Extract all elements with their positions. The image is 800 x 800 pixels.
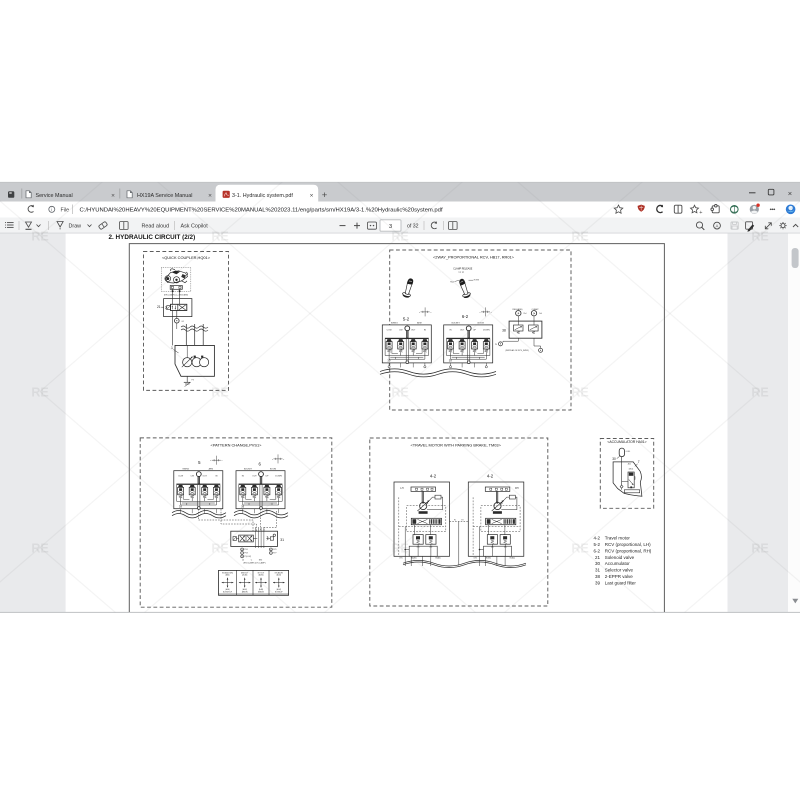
svg-text:PV5: PV5 <box>273 549 276 551</box>
svg-text:21: 21 <box>595 555 601 560</box>
svg-text:Ask Copilot: Ask Copilot <box>181 224 209 230</box>
svg-text:38: 38 <box>502 328 506 332</box>
svg-text:4-2: 4-2 <box>593 535 600 540</box>
svg-text:DR5: DR5 <box>474 558 477 560</box>
svg-text:2. HYDRAULIC CIRCUIT (2/2): 2. HYDRAULIC CIRCUIT (2/2) <box>109 234 196 241</box>
svg-text:OUT: OUT <box>460 330 465 332</box>
svg-text:Solenoid valve: Solenoid valve <box>605 555 635 560</box>
svg-text:RCV (proportional, RH): RCV (proportional, RH) <box>605 548 652 553</box>
svg-text:RE: RE <box>391 542 408 556</box>
svg-text:A02: A02 <box>628 462 631 465</box>
svg-text:a: a <box>272 459 273 461</box>
svg-text:P4: P4 <box>495 344 497 346</box>
svg-text:(MD2): (MD2) <box>629 469 634 471</box>
svg-text:a: a <box>222 460 223 462</box>
svg-text:LH: LH <box>400 487 403 490</box>
svg-text:BUCKET,UP: BUCKET,UP <box>223 592 232 594</box>
svg-text:31: 31 <box>280 538 284 542</box>
svg-text:P1(LG2): P1(LG2) <box>244 556 251 558</box>
svg-text:SWING: SWING <box>182 469 189 471</box>
svg-text:CLAMP: CLAMP <box>532 308 540 311</box>
svg-text:PV6: PV6 <box>244 549 247 551</box>
svg-text:7: 7 <box>638 460 640 464</box>
svg-text:RE: RE <box>211 542 228 556</box>
svg-text:+: + <box>322 190 328 201</box>
svg-text:BOOM,UP: BOOM,UP <box>275 592 283 594</box>
svg-text:<2WAY_PROPORTIONAL RCV, HB17,: <2WAY_PROPORTIONAL RCV, HB17, RR01> <box>433 255 515 260</box>
svg-text:DOWN: DOWN <box>483 330 490 332</box>
svg-text:5-2: 5-2 <box>403 317 410 322</box>
svg-text:P2: P2 <box>461 519 463 521</box>
svg-text:39: 39 <box>595 581 601 586</box>
svg-text:Pa4: Pa4 <box>539 313 542 315</box>
svg-text:OUT: OUT <box>203 475 208 477</box>
svg-text:G1: G1 <box>181 321 184 323</box>
svg-text:DR5: DR5 <box>399 558 402 560</box>
svg-text:38: 38 <box>595 574 601 579</box>
svg-text:×: × <box>788 189 792 198</box>
svg-text:B5(A6): B5(A6) <box>435 557 441 560</box>
svg-text:CLAMP RELEASE: CLAMP RELEASE <box>453 267 473 270</box>
svg-text:HORN: HORN <box>474 280 480 282</box>
svg-text:(INSTEAD OF RCV_SW01): (INSTEAD OF RCV_SW01) <box>506 349 530 352</box>
svg-text:×: × <box>208 192 212 199</box>
svg-text:(+) (-): (+) (-) <box>459 272 465 274</box>
svg-text:OUT: OUT <box>252 475 257 477</box>
svg-text:+: + <box>699 210 702 216</box>
svg-text:RELEASE): RELEASE) <box>513 308 523 311</box>
svg-text:21: 21 <box>157 305 161 309</box>
svg-text:RE: RE <box>211 386 228 400</box>
svg-text:P1: P1 <box>454 519 456 521</box>
svg-text:RE: RE <box>751 386 768 400</box>
svg-text:<QUICK COUPLER,HQ01>: <QUICK COUPLER,HQ01> <box>162 255 211 260</box>
svg-text:(RH,CLAMP) (LH,CLAMP): (RH,CLAMP) (LH,CLAMP) <box>243 562 266 565</box>
svg-text:Travel motor: Travel motor <box>605 535 631 540</box>
svg-text:DOWN: DOWN <box>275 475 282 477</box>
svg-text:RE: RE <box>31 386 48 400</box>
svg-text:i: i <box>51 207 52 212</box>
svg-text:a: a <box>283 459 284 461</box>
svg-text:<PATTERN CHANGE,PVS1>: <PATTERN CHANGE,PVS1> <box>211 442 263 447</box>
svg-text:4-2: 4-2 <box>487 474 494 479</box>
svg-text:4-2: 4-2 <box>430 474 437 479</box>
svg-text:PV8: PV8 <box>244 553 247 555</box>
svg-text:RE: RE <box>571 542 588 556</box>
svg-text:Service Manual: Service Manual <box>36 193 73 199</box>
svg-text:RE: RE <box>31 230 48 244</box>
svg-text:30: 30 <box>612 457 616 461</box>
svg-text:×: × <box>111 192 115 199</box>
svg-text:31: 31 <box>595 568 601 573</box>
svg-text:0.08L: 0.08L <box>626 451 631 453</box>
svg-text:A5(B6): A5(B6) <box>486 557 492 560</box>
svg-text:File: File <box>61 207 70 213</box>
svg-text:2-EPPR valve: 2-EPPR valve <box>605 574 634 579</box>
svg-text:BUCKET: BUCKET <box>452 323 461 325</box>
svg-text:A: A <box>716 224 719 229</box>
svg-text:6-2: 6-2 <box>462 314 469 319</box>
svg-text:SIG: SIG <box>259 560 263 562</box>
svg-text:a: a <box>479 312 480 314</box>
svg-text:BKT OUT: BKT OUT <box>258 572 265 574</box>
svg-text:RE: RE <box>571 230 588 244</box>
svg-text:a: a <box>430 312 431 314</box>
svg-text:BUCKET: BUCKET <box>244 469 253 471</box>
svg-text:P3: P3 <box>192 380 194 382</box>
svg-text:39: 39 <box>449 359 452 363</box>
svg-text:RE: RE <box>391 386 408 400</box>
svg-text:RCV (proportional, LH): RCV (proportional, LH) <box>605 542 651 547</box>
svg-text:(RH,CLAMP) (L+,RELEASE): (RH,CLAMP) (L+,RELEASE) <box>164 294 189 297</box>
svg-text:RE: RE <box>751 542 768 556</box>
svg-text:HX19A Service Manual: HX19A Service Manual <box>137 193 192 199</box>
svg-text:×: × <box>310 192 314 199</box>
svg-text:CW: CW <box>190 475 194 477</box>
svg-text:BOOM: BOOM <box>270 469 276 471</box>
svg-text:RE: RE <box>391 230 408 244</box>
svg-text:5-2: 5-2 <box>593 542 600 547</box>
svg-text:CCW: CCW <box>387 330 392 332</box>
svg-text:Draw: Draw <box>69 224 82 230</box>
svg-text:B5(A6): B5(A6) <box>510 557 516 560</box>
svg-text:PV7: PV7 <box>273 553 276 555</box>
svg-text:Read aloud: Read aloud <box>142 224 170 230</box>
svg-text:ARM: ARM <box>417 322 422 325</box>
svg-text:RE: RE <box>751 230 768 244</box>
svg-text:RE: RE <box>211 230 228 244</box>
svg-text:39: 39 <box>387 359 390 363</box>
svg-text:39: 39 <box>241 504 244 508</box>
svg-text:ARM: ARM <box>209 468 214 471</box>
svg-text:OUT: OUT <box>411 330 416 332</box>
svg-text:<TRAVEL MOTOR WITH PARKING BRA: <TRAVEL MOTOR WITH PARKING BRAKE, TM03> <box>411 442 502 447</box>
svg-text:RE: RE <box>31 542 48 556</box>
svg-text:C:/HYUNDAI%20HEAVY%20EQUIPMENT: C:/HYUNDAI%20HEAVY%20EQUIPMENT%20SERVICE… <box>80 207 443 213</box>
svg-text:CW: CW <box>399 330 403 332</box>
svg-text:SWING: SWING <box>391 323 398 325</box>
svg-text:Accumulator: Accumulator <box>605 561 631 566</box>
svg-text:a: a <box>210 460 211 462</box>
svg-text:Pb4: Pb4 <box>524 313 527 315</box>
svg-text:RE: RE <box>571 386 588 400</box>
svg-text:CCW: CCW <box>178 475 183 477</box>
svg-text:39: 39 <box>179 504 182 508</box>
svg-text:a: a <box>419 312 420 314</box>
svg-text:RH: RH <box>515 487 519 490</box>
svg-text:6-2: 6-2 <box>593 548 600 553</box>
